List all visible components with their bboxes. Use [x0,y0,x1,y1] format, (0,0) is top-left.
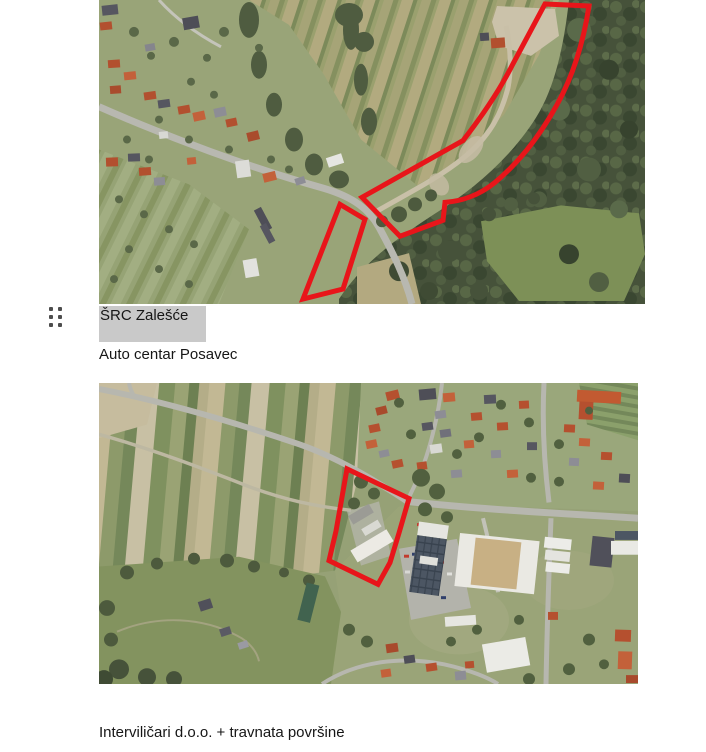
aerial-image-1-block[interactable] [99,0,645,304]
caption-intervilicari[interactable]: Interviličari d.o.o. + travnata površine [99,724,345,742]
drag-dot [49,307,53,311]
drag-dot [58,307,62,311]
aerial-image-1 [99,0,645,304]
aerial-image-2 [99,383,638,684]
drag-dot [58,315,62,319]
caption-src-zalesce[interactable]: ŠRC Zalešće [99,306,206,325]
document-page: ŠRC Zalešće Auto centar Posavec [0,0,706,752]
aerial-image-2-block[interactable] [99,383,638,684]
drag-handle-icon[interactable] [49,307,63,327]
drag-dot [49,315,53,319]
caption-auto-centar[interactable]: Auto centar Posavec [99,346,237,364]
caption-highlight-box[interactable]: ŠRC Zalešće [99,306,206,342]
drag-dot [58,323,62,327]
drag-dot [49,323,53,327]
